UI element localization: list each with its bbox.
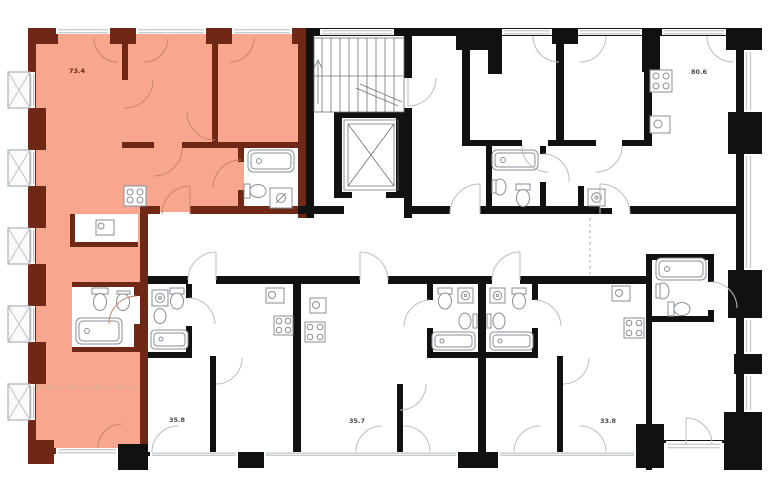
area-label-35-8: 35.8 bbox=[169, 416, 186, 424]
shower-tray-icon bbox=[270, 188, 292, 208]
structural-column-icon bbox=[8, 306, 30, 342]
bathtub-icon bbox=[248, 150, 294, 172]
elevator-icon bbox=[344, 120, 398, 190]
toilet-icon bbox=[92, 288, 108, 311]
structural-columns bbox=[8, 72, 30, 420]
area-label-33-8: 33.8 bbox=[600, 417, 617, 425]
apartment-35-7-region[interactable] bbox=[301, 284, 478, 452]
area-label-73-4: 73.4 bbox=[69, 67, 86, 75]
floor-plan: 73.4 80.6 35.8 35.7 33.8 bbox=[0, 0, 770, 500]
apartment-33-8-region[interactable] bbox=[486, 284, 646, 452]
toilet-icon bbox=[244, 184, 266, 198]
stairs-icon bbox=[314, 38, 404, 112]
structural-column-icon bbox=[8, 384, 30, 420]
stove-icon bbox=[124, 186, 146, 206]
structural-column-icon bbox=[8, 72, 30, 108]
apartment-35-8-region[interactable] bbox=[148, 284, 293, 452]
kitchen-sink-icon bbox=[96, 220, 114, 235]
bathtub-icon bbox=[76, 318, 122, 344]
sink-icon bbox=[117, 291, 131, 311]
structural-column-icon bbox=[8, 150, 30, 186]
area-label-80-6: 80.6 bbox=[691, 68, 708, 76]
area-label-35-7: 35.7 bbox=[349, 417, 365, 425]
structural-column-icon bbox=[8, 228, 30, 264]
